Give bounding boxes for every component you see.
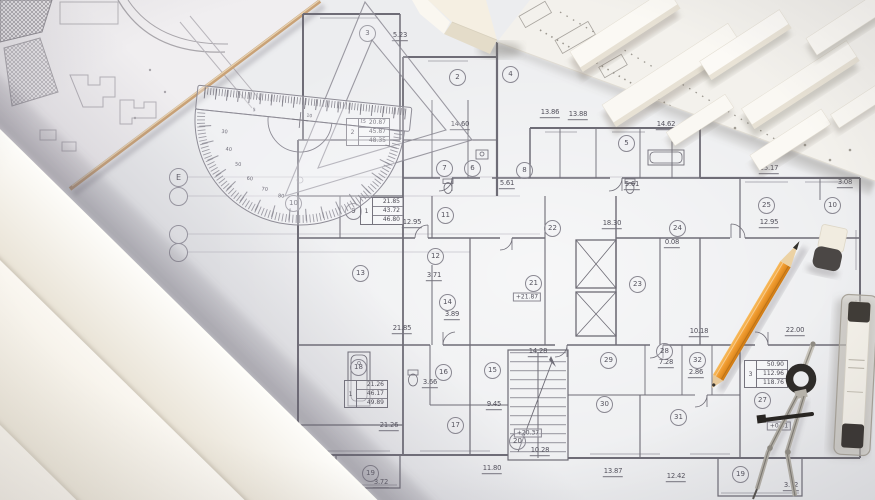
photo-vignette [0, 0, 875, 500]
blueprint-workspace-photo: E 3 2 4 5 7 6 8 9 10 11 12 13 14 21 22 2… [0, 0, 875, 500]
objects-layer: 5 10 15 30 40 50 60 70 80 [0, 0, 875, 500]
